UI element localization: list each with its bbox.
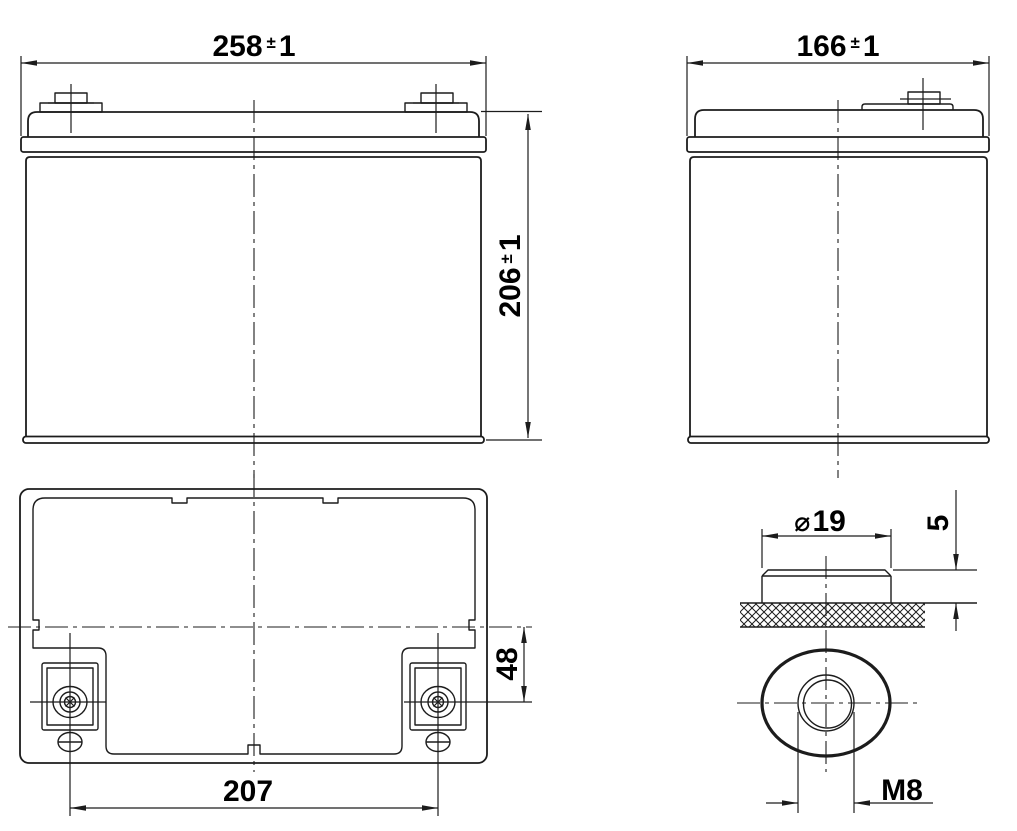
section-hatch	[740, 603, 925, 627]
arrowhead	[521, 686, 527, 702]
thread-hole-minor	[804, 680, 852, 728]
dim-terminal-offset: 48	[491, 627, 527, 702]
arrowhead	[762, 533, 778, 539]
arrowhead	[875, 533, 891, 539]
arrowhead	[525, 114, 531, 130]
drawing-svg: 258±1 206±1 166±1	[0, 0, 1017, 831]
battery-technical-drawing: 258±1 206±1 166±1	[0, 0, 1017, 831]
dim-label-terminal-pitch: 207	[223, 775, 273, 808]
dim-label-length: 258±1	[212, 30, 295, 63]
arrowhead	[782, 800, 798, 806]
dim-overall-height: 206±1	[481, 112, 542, 441]
arrowhead	[422, 805, 438, 811]
lid-outline	[695, 110, 983, 137]
arrowhead	[470, 60, 486, 66]
terminal-post-top	[908, 92, 940, 104]
arrowhead	[854, 800, 870, 806]
dim-label-terminal-height: 5	[922, 515, 955, 532]
arrowhead	[21, 60, 37, 66]
arrowhead	[525, 422, 531, 438]
dim-label-terminal-offset: 48	[491, 647, 524, 680]
dim-label-width: 166±1	[796, 30, 879, 63]
dim-label-height: 206±1	[494, 234, 527, 317]
arrowhead	[687, 60, 703, 66]
terminal-post-right-top	[421, 93, 453, 103]
arrowhead	[973, 60, 989, 66]
terminal-detail-top	[737, 650, 917, 756]
dim-terminal-thread: M8	[766, 712, 933, 813]
dim-label-terminal-thread: M8	[881, 774, 923, 807]
front-view	[21, 84, 486, 478]
arrowhead	[953, 554, 959, 570]
top-view	[8, 474, 532, 772]
arrowhead	[521, 627, 527, 643]
arrowhead	[70, 805, 86, 811]
dim-label-terminal-diameter: ⌀19	[794, 505, 846, 538]
arrowhead	[953, 603, 959, 619]
side-view	[687, 78, 989, 478]
terminal-detail-section	[740, 556, 977, 772]
